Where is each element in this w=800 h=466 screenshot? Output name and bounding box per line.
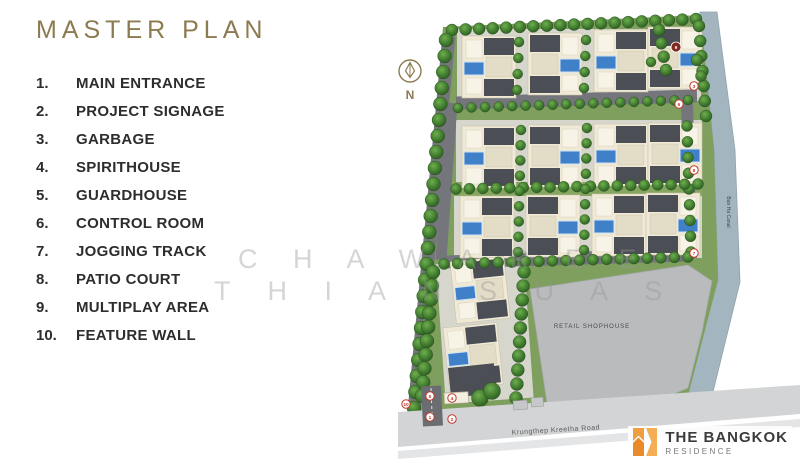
- tree-icon: [480, 102, 490, 112]
- tree-icon: [460, 23, 472, 35]
- tree-icon: [666, 179, 677, 190]
- tree-icon: [629, 97, 639, 107]
- plan-marker-4: 4: [448, 394, 456, 402]
- tree-icon: [582, 138, 592, 148]
- tree-icon: [693, 179, 704, 190]
- tree-icon: [655, 252, 666, 263]
- tree-icon: [656, 96, 666, 106]
- tree-icon: [561, 255, 572, 266]
- tree-icon: [479, 257, 490, 268]
- tree-icon: [527, 20, 539, 32]
- svg-text:4: 4: [451, 396, 454, 402]
- tree-icon: [513, 69, 523, 79]
- retail-label: RETAIL SHOPHOUSE: [554, 324, 630, 330]
- tree-icon: [575, 99, 585, 109]
- legend-label: SPIRITHOUSE: [76, 159, 181, 176]
- retail-shophouse-area: [530, 265, 712, 410]
- tree-icon: [531, 182, 542, 193]
- tree-icon: [419, 348, 433, 362]
- legend-label: FEATURE WALL: [76, 327, 196, 344]
- tree-icon: [451, 184, 462, 195]
- tree-icon: [513, 53, 523, 63]
- tree-icon: [639, 180, 650, 191]
- tree-icon: [642, 96, 652, 106]
- tree-icon: [515, 171, 525, 181]
- tree-icon: [427, 177, 441, 191]
- tree-icon: [548, 100, 558, 110]
- tree-icon: [464, 183, 475, 194]
- tree-icon: [541, 20, 553, 32]
- tree-icon: [507, 101, 517, 111]
- tree-icon: [658, 51, 670, 63]
- plan-marker-8: 8: [690, 166, 698, 174]
- tree-icon: [580, 215, 590, 225]
- legend-number: 2.: [36, 103, 76, 120]
- brand-logo: THE BANGKOK RESIDENCE: [628, 426, 792, 458]
- legend-number: 7.: [36, 243, 76, 260]
- plan-marker-10: 10: [402, 400, 410, 408]
- tree-icon: [516, 294, 529, 307]
- tree-icon: [655, 37, 667, 49]
- plan-marker-9: 9: [671, 42, 681, 52]
- tree-icon: [425, 193, 439, 207]
- tree-icon: [652, 179, 663, 190]
- brand-subname: RESIDENCE: [665, 447, 788, 456]
- plan-marker-5: 5: [426, 392, 434, 400]
- tree-icon: [511, 364, 524, 377]
- tree-icon: [514, 21, 526, 33]
- legend-number: 9.: [36, 299, 76, 316]
- tree-icon: [424, 293, 438, 307]
- tree-icon: [515, 308, 528, 321]
- tree-icon: [533, 256, 544, 267]
- tree-icon: [685, 231, 696, 242]
- tree-icon: [636, 15, 648, 27]
- legend-label: MULTIPLAY AREA: [76, 299, 209, 316]
- brand-name: THE BANGKOK: [665, 429, 788, 446]
- tree-icon: [513, 232, 523, 242]
- tree-icon: [554, 19, 566, 31]
- tree-icon: [422, 225, 436, 239]
- tree-icon: [473, 23, 485, 35]
- tree-icon: [439, 259, 450, 270]
- tree-icon: [581, 35, 591, 45]
- canal-label: Ban Ha Canal: [725, 196, 731, 227]
- tree-icon: [547, 255, 558, 266]
- compass-icon: N: [399, 60, 421, 102]
- tree-icon: [504, 182, 515, 193]
- tree-icon: [625, 180, 636, 191]
- tree-icon: [506, 257, 517, 268]
- tree-icon: [595, 17, 607, 29]
- tree-icon: [420, 334, 434, 348]
- tree-icon: [693, 20, 705, 32]
- tree-icon: [581, 154, 591, 164]
- tree-icon: [682, 136, 693, 147]
- tree-icon: [580, 199, 590, 209]
- tree-icon: [515, 156, 525, 166]
- tree-icon: [466, 258, 477, 269]
- tree-icon: [425, 279, 439, 293]
- tree-icon: [421, 320, 435, 334]
- tree-icon: [516, 125, 526, 135]
- tree-icon: [422, 306, 436, 320]
- tree-icon: [517, 280, 530, 293]
- legend-label: PATIO COURT: [76, 271, 180, 288]
- tree-icon: [698, 80, 710, 92]
- plan-marker-6: 6: [675, 100, 683, 108]
- tree-icon: [579, 230, 589, 240]
- tree-icon: [676, 14, 688, 26]
- tree-icon: [436, 65, 450, 79]
- legend-number: 6.: [36, 215, 76, 232]
- tree-icon: [663, 14, 675, 26]
- tree-icon: [558, 181, 569, 192]
- svg-text:2: 2: [451, 417, 454, 423]
- legend-label: GARBAGE: [76, 131, 155, 148]
- tree-icon: [679, 179, 690, 190]
- tree-icon: [521, 101, 531, 111]
- tree-icon: [609, 17, 621, 29]
- brand-text: THE BANGKOK RESIDENCE: [665, 429, 788, 456]
- tree-icon: [700, 110, 712, 122]
- tree-icon: [514, 37, 524, 47]
- tree-icon: [581, 169, 591, 179]
- tree-icon: [694, 35, 706, 47]
- tree-icon: [579, 83, 589, 93]
- svg-text:1: 1: [429, 415, 432, 421]
- tree-icon: [452, 258, 463, 269]
- legend-item-8: 8.PATIO COURT: [36, 271, 356, 299]
- tree-icon: [642, 253, 653, 264]
- tree-icon: [514, 201, 524, 211]
- legend-number: 8.: [36, 271, 76, 288]
- tree-icon: [512, 85, 522, 95]
- legend-item-2: 2.PROJECT SIGNAGE: [36, 103, 356, 131]
- legend-list: 1.MAIN ENTRANCE 2.PROJECT SIGNAGE 3.GARB…: [36, 75, 356, 355]
- tree-icon: [431, 129, 445, 143]
- legend-panel: MASTER PLAN 1.MAIN ENTRANCE 2.PROJECT SI…: [36, 16, 356, 355]
- legend-label: JOGGING TRACK: [76, 243, 207, 260]
- tree-icon: [428, 161, 442, 175]
- tree-icon: [429, 145, 443, 159]
- tree-icon: [601, 254, 612, 265]
- tree-icon: [628, 253, 639, 264]
- tree-icon: [513, 336, 526, 349]
- tree-icon: [438, 49, 452, 63]
- tree-icon: [615, 97, 625, 107]
- tree-icon: [685, 215, 696, 226]
- tree-icon: [467, 103, 477, 113]
- tree-icon: [417, 361, 431, 375]
- tree-icon: [432, 113, 446, 127]
- tree-icon: [588, 254, 599, 265]
- svg-text:5: 5: [429, 394, 432, 400]
- svg-text:3: 3: [693, 84, 696, 90]
- tree-icon: [622, 16, 634, 28]
- tree-icon: [534, 100, 544, 110]
- tree-icon: [580, 67, 590, 77]
- tree-icon: [510, 378, 523, 391]
- tree-icon: [682, 121, 693, 132]
- tree-icon: [669, 252, 680, 263]
- tree-icon: [484, 383, 501, 400]
- legend-item-3: 3.GARBAGE: [36, 131, 356, 159]
- tree-icon: [433, 97, 447, 111]
- tree-icon: [582, 18, 594, 30]
- tree-icon: [514, 217, 524, 227]
- tree-icon: [453, 103, 463, 113]
- master-plan-page: RETAIL SHOPHOUSE Krungthep Kreetha Road …: [0, 0, 800, 466]
- tree-icon: [598, 180, 609, 191]
- legend-item-6: 6.CONTROL ROOM: [36, 215, 356, 243]
- tree-icon: [602, 98, 612, 108]
- tree-icon: [514, 322, 527, 335]
- tree-icon: [439, 33, 453, 47]
- plan-marker-1: 1: [426, 413, 434, 421]
- tree-icon: [568, 19, 580, 31]
- tree-icon: [545, 182, 556, 193]
- tree-icon: [513, 247, 523, 257]
- svg-text:6: 6: [678, 102, 681, 108]
- tree-icon: [646, 57, 656, 67]
- legend-item-1: 1.MAIN ENTRANCE: [36, 75, 356, 103]
- tree-icon: [579, 245, 589, 255]
- legend-item-10: 10.FEATURE WALL: [36, 327, 356, 355]
- tree-icon: [491, 183, 502, 194]
- legend-item-4: 4.SPIRITHOUSE: [36, 159, 356, 187]
- tree-icon: [612, 180, 623, 191]
- legend-item-9: 9.MULTIPLAY AREA: [36, 299, 356, 327]
- svg-text:8: 8: [693, 168, 696, 174]
- legend-number: 4.: [36, 159, 76, 176]
- tree-icon: [696, 71, 707, 82]
- tree-icon: [500, 22, 512, 34]
- tree-icon: [516, 140, 526, 150]
- plan-marker-3: 3: [690, 82, 698, 90]
- tree-icon: [582, 123, 592, 133]
- plan-marker-2: 2: [448, 415, 456, 423]
- tree-icon: [683, 95, 693, 105]
- legend-item-5: 5.GUARDHOUSE: [36, 187, 356, 215]
- tree-icon: [424, 209, 438, 223]
- tree-icon: [518, 266, 531, 279]
- tree-icon: [588, 98, 598, 108]
- svg-text:9: 9: [675, 45, 678, 51]
- legend-label: CONTROL ROOM: [76, 215, 204, 232]
- legend-number: 1.: [36, 75, 76, 92]
- plan-marker-7: 7: [690, 249, 698, 257]
- tree-icon: [684, 199, 695, 210]
- legend-label: MAIN ENTRANCE: [76, 75, 206, 92]
- tree-icon: [581, 184, 591, 194]
- tree-icon: [561, 99, 571, 109]
- legend-number: 5.: [36, 187, 76, 204]
- tree-icon: [660, 64, 672, 76]
- tree-icon: [615, 253, 626, 264]
- tree-icon: [574, 255, 585, 266]
- tree-icon: [515, 186, 525, 196]
- tree-icon: [487, 22, 499, 34]
- page-title: MASTER PLAN: [36, 16, 356, 45]
- legend-number: 3.: [36, 131, 76, 148]
- tree-icon: [421, 241, 435, 255]
- tree-icon: [477, 183, 488, 194]
- brand-logo-icon: [632, 428, 658, 456]
- tree-icon: [683, 152, 694, 163]
- tree-icon: [580, 51, 590, 61]
- svg-text:7: 7: [693, 251, 696, 257]
- compass-north-label: N: [406, 88, 415, 102]
- legend-item-7: 7.JOGGING TRACK: [36, 243, 356, 271]
- tree-icon: [494, 102, 504, 112]
- legend-number: 10.: [36, 327, 76, 344]
- tree-icon: [699, 95, 711, 107]
- tree-icon: [653, 24, 665, 36]
- tree-icon: [691, 54, 703, 66]
- tree-icon: [493, 257, 504, 268]
- tree-icon: [435, 81, 449, 95]
- legend-label: PROJECT SIGNAGE: [76, 103, 225, 120]
- tree-icon: [426, 265, 440, 279]
- tree-icon: [512, 350, 525, 363]
- legend-label: GUARDHOUSE: [76, 187, 187, 204]
- svg-text:10: 10: [403, 402, 409, 408]
